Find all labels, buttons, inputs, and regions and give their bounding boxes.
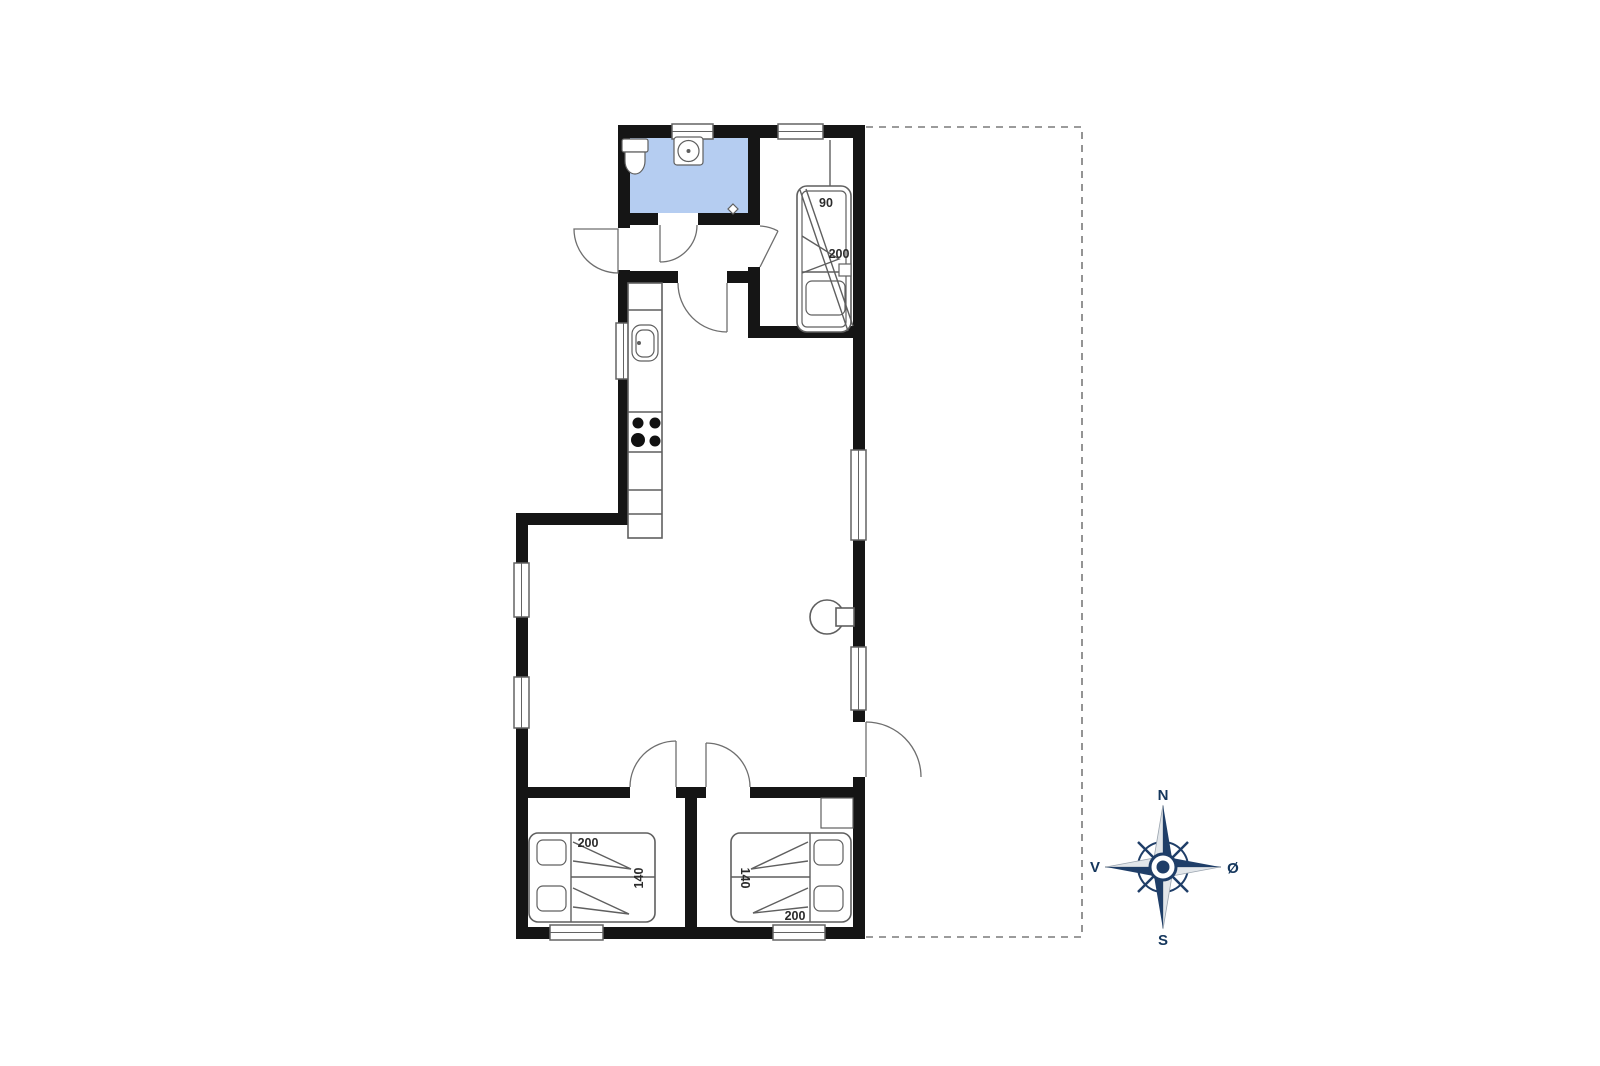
window-living-east-2 <box>851 647 866 710</box>
wall-hall-bottom-left <box>630 271 678 283</box>
window-bedroom-left-south <box>550 925 603 940</box>
wall-right-upper <box>853 125 865 722</box>
door-hall-living <box>678 283 727 332</box>
compass-label-east: Ø <box>1227 860 1239 877</box>
door-bathroom <box>660 225 697 262</box>
door-bedroom-right <box>706 743 750 787</box>
bed-right-pillow-2 <box>814 886 843 911</box>
terrace-dashed-outline <box>866 127 1082 937</box>
bed-right-pillow-1 <box>814 840 843 865</box>
wall-bedrooms-top-right <box>750 787 865 798</box>
door-entry-east <box>866 722 921 777</box>
wall-top <box>618 125 865 138</box>
wall-step <box>516 513 629 525</box>
door-bunkroom <box>760 226 778 267</box>
bed-left-pillow-1 <box>537 840 566 865</box>
window-bunkroom-top <box>778 124 823 139</box>
wall-bathroom-bottom-left <box>630 213 658 225</box>
washbasin-icon <box>674 137 703 165</box>
bed-right <box>731 798 853 922</box>
door-entry-west <box>574 229 618 273</box>
floor-plan-drawing: 90 200 200 140 140 200 N S V Ø <box>0 0 1600 1066</box>
compass-label-north: N <box>1158 787 1169 804</box>
window-living-east-1 <box>851 450 866 540</box>
kitchen-counter <box>628 283 662 538</box>
bunk-bed-width-label: 90 <box>819 196 833 210</box>
wall-bedrooms-top-left <box>516 787 630 798</box>
closet-right-bedroom <box>821 798 853 828</box>
bed-right-width-label: 140 <box>738 868 752 889</box>
kitchen-sink-icon <box>632 325 658 361</box>
bed-left-pillow-2 <box>537 886 566 911</box>
window-bedroom-right-south <box>773 925 825 940</box>
wall-hall-bottom-right <box>727 271 760 283</box>
bed-right-length-label: 200 <box>785 909 806 923</box>
bed-left-width-label: 140 <box>632 868 646 889</box>
bunk-bed <box>797 140 853 332</box>
wall-bedrooms-top-mid <box>676 787 706 798</box>
floor-plan-page: 90 200 200 140 140 200 N S V Ø <box>0 0 1600 1066</box>
door-bedroom-left <box>630 741 676 787</box>
wall-bedroom-divider <box>685 798 697 927</box>
compass-rose: N S V Ø <box>1090 787 1239 949</box>
compass-label-south: S <box>1158 932 1168 949</box>
window-living-west-2 <box>514 677 529 728</box>
bed-left-length-label: 200 <box>578 836 599 850</box>
compass-label-west: V <box>1090 859 1100 876</box>
wall-bathroom-bunkroom <box>748 138 760 225</box>
bunk-bed-length-label: 200 <box>829 247 850 261</box>
wood-stove-icon <box>810 600 854 634</box>
window-living-west-1 <box>514 563 529 617</box>
wall-right-lower <box>853 777 865 939</box>
